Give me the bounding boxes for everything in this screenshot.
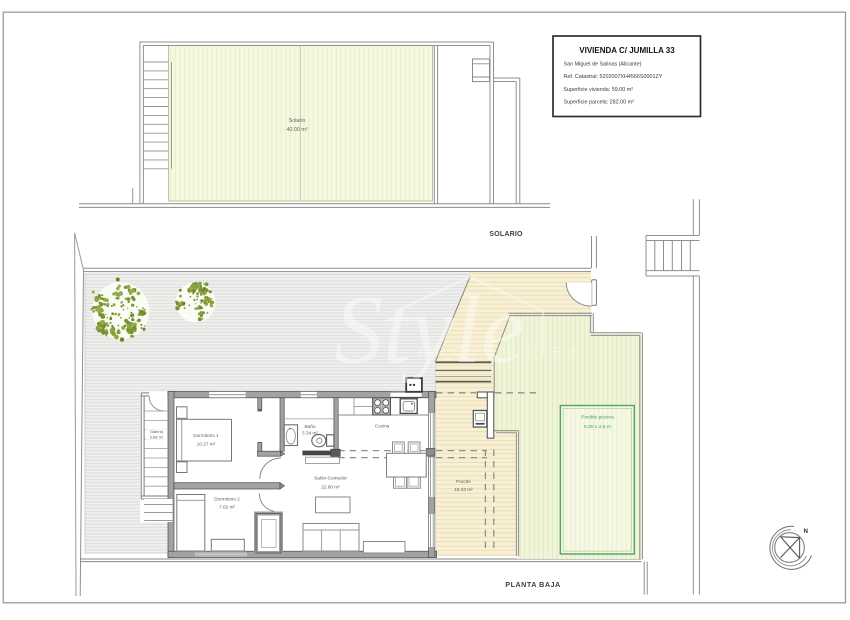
svg-text:5,00 x 2,5 m: 5,00 x 2,5 m — [584, 424, 611, 430]
svg-text:Baño: Baño — [305, 424, 316, 429]
svg-text:San Miguel de Salinas (Alicant: San Miguel de Salinas (Alicante) — [564, 62, 642, 68]
svg-text:Solario: Solario — [289, 118, 306, 124]
svg-text:22.60 m²: 22.60 m² — [321, 485, 340, 490]
svg-text:PROPERTIES: PROPERTIES — [419, 344, 588, 359]
svg-text:3.34 m²: 3.34 m² — [302, 431, 318, 436]
svg-text:VIVIENDA C/ JUMILLA 33: VIVIENDA C/ JUMILLA 33 — [579, 46, 675, 55]
svg-text:40.00 m²: 40.00 m² — [286, 127, 307, 133]
svg-text:Superficie parcela: 282.00 m²: Superficie parcela: 282.00 m² — [564, 100, 635, 106]
svg-text:Style: Style — [334, 276, 524, 384]
svg-text:Dormitorio 1: Dormitorio 1 — [193, 433, 219, 438]
svg-text:Salón-Comedor: Salón-Comedor — [314, 476, 347, 481]
svg-text:15.33 m²: 15.33 m² — [454, 487, 473, 492]
svg-text:Cocina: Cocina — [375, 423, 390, 428]
svg-text:Posible piscina: Posible piscina — [581, 415, 614, 421]
svg-text:SOLARIO: SOLARIO — [489, 231, 523, 238]
svg-text:Ref. Catastral: 5202007XH4566S: Ref. Catastral: 5202007XH4566S0001ZY — [564, 74, 663, 80]
svg-text:Galería: Galería — [150, 429, 164, 434]
svg-text:Porche: Porche — [456, 479, 471, 484]
svg-text:2.68 m²: 2.68 m² — [150, 435, 164, 440]
svg-text:PLANTA BAJA: PLANTA BAJA — [505, 580, 560, 589]
svg-text:Dormitorio 2: Dormitorio 2 — [214, 496, 240, 501]
svg-text:Superficie vivienda: 59.00 m²: Superficie vivienda: 59.00 m² — [564, 87, 634, 93]
svg-text:7.62 m²: 7.62 m² — [219, 505, 235, 510]
svg-text:10.27 m²: 10.27 m² — [197, 442, 216, 447]
svg-text:N: N — [804, 528, 809, 535]
